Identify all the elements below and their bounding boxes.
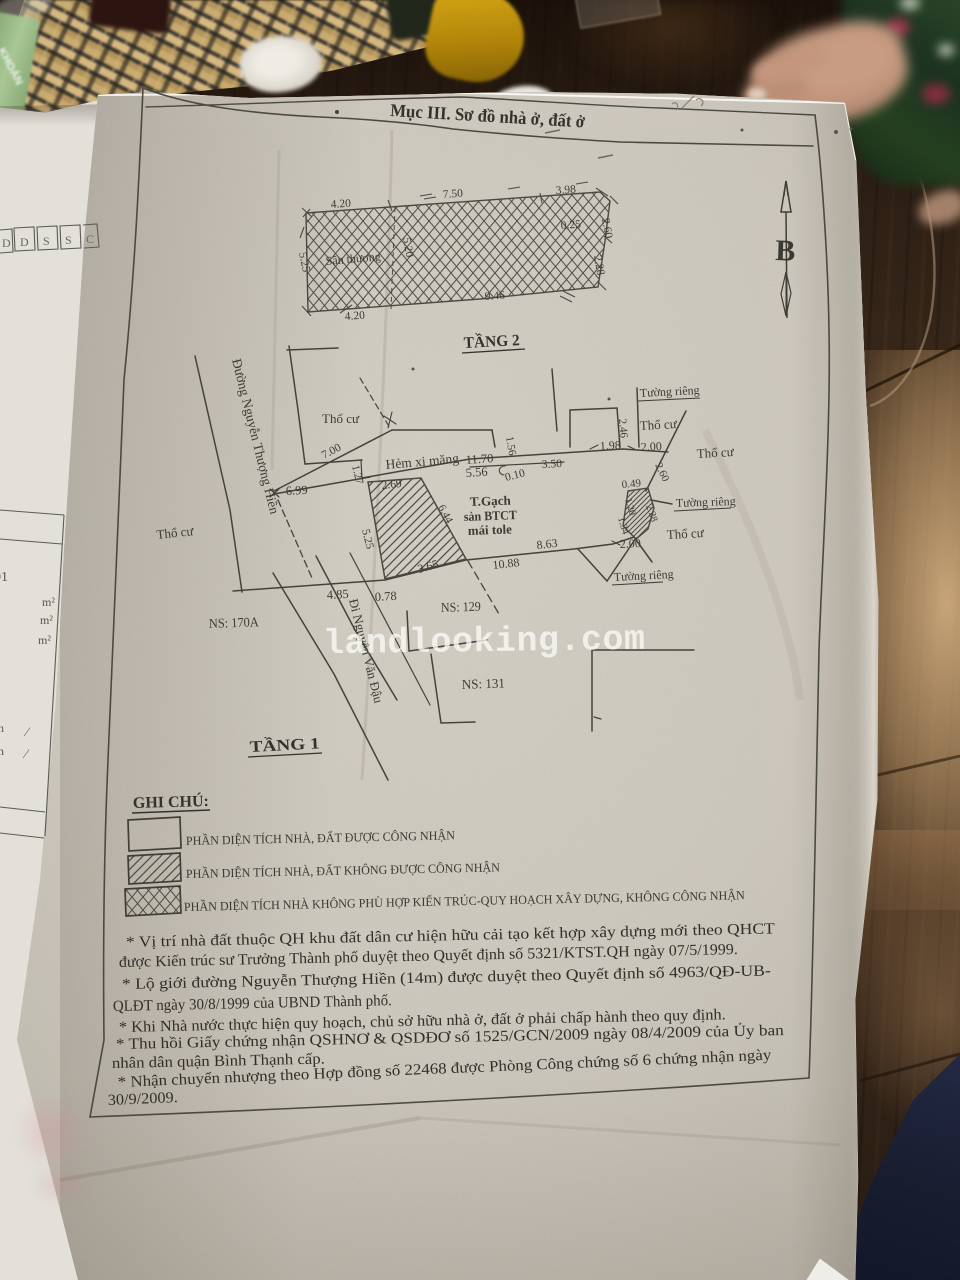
svg-text:4.85: 4.85 xyxy=(326,587,349,602)
svg-text:PHẦN DIỆN TÍCH NHÀ, ĐẤT ĐƯỢC C: PHẦN DIỆN TÍCH NHÀ, ĐẤT ĐƯỢC CÔNG NHẬN xyxy=(186,827,455,848)
svg-text:30/9/2009.: 30/9/2009. xyxy=(107,1089,178,1109)
svg-text:m²: m² xyxy=(40,613,53,627)
svg-text:Thổ cư: Thổ cư xyxy=(666,525,705,542)
svg-text:8.63: 8.63 xyxy=(536,536,558,552)
svg-text:7.00: 7.00 xyxy=(320,441,344,461)
svg-text:Thổ cư: Thổ cư xyxy=(696,444,735,461)
svg-text:Hẻm xi măng: Hẻm xi măng xyxy=(385,451,460,472)
svg-text:Thổ cư: Thổ cư xyxy=(639,416,678,433)
svg-text:1.98: 1.98 xyxy=(599,438,621,453)
svg-text:0.25: 0.25 xyxy=(560,219,581,232)
svg-text:3.98: 3.98 xyxy=(555,184,576,197)
svg-text:T.Gạch: T.Gạch xyxy=(470,493,512,509)
svg-text:3.50: 3.50 xyxy=(542,458,563,471)
svg-text:2.46: 2.46 xyxy=(616,418,630,439)
svg-text:4.20: 4.20 xyxy=(330,198,351,211)
svg-text:5.56: 5.56 xyxy=(465,465,488,480)
svg-text:2.00: 2.00 xyxy=(640,439,662,454)
svg-text:2.69: 2.69 xyxy=(381,478,403,492)
svg-text:01: 01 xyxy=(0,570,8,585)
svg-text:TẦNG 1: TẦNG 1 xyxy=(249,733,320,756)
svg-text:S: S xyxy=(65,233,72,247)
svg-text:TẦNG 2: TẦNG 2 xyxy=(463,330,520,352)
svg-text:4.20: 4.20 xyxy=(344,310,365,323)
svg-text:NS: 131: NS: 131 xyxy=(462,676,505,692)
svg-text:C: C xyxy=(86,232,94,246)
svg-text:5.25: 5.25 xyxy=(359,528,376,551)
svg-text:10.88: 10.88 xyxy=(492,555,520,572)
svg-text:m²: m² xyxy=(42,595,55,609)
svg-text:Thổ cư: Thổ cư xyxy=(156,523,195,542)
svg-text:Thổ cư: Thổ cư xyxy=(322,411,360,426)
svg-text:NS: 129: NS: 129 xyxy=(441,599,482,615)
svg-text:Đường Nguyễn Thượng Hiền: Đường Nguyễn Thượng Hiền xyxy=(229,357,282,516)
svg-text:PHẦN DIỆN TÍCH NHÀ KHÔNG PHÙ H: PHẦN DIỆN TÍCH NHÀ KHÔNG PHÙ HỢP KIẾN TR… xyxy=(184,887,745,914)
svg-text:1.56: 1.56 xyxy=(503,435,518,457)
svg-text:n: n xyxy=(0,721,4,735)
svg-text:m²: m² xyxy=(38,633,51,647)
svg-text:QLĐT ngày 30/8/1999 của UBND T: QLĐT ngày 30/8/1999 của UBND Thành phố. xyxy=(113,992,392,1015)
svg-text:Mục III. Sơ đồ nhà ở, đất ở: Mục III. Sơ đồ nhà ở, đất ở xyxy=(390,100,586,132)
svg-text:2.00: 2.00 xyxy=(619,536,641,551)
svg-text:n: n xyxy=(0,744,4,758)
svg-text:Tường riêng: Tường riêng xyxy=(676,494,736,510)
svg-text:B: B xyxy=(775,234,796,268)
svg-text:6.99: 6.99 xyxy=(285,483,308,498)
svg-text:0.78: 0.78 xyxy=(374,589,397,604)
svg-text:PHẦN DIỆN TÍCH NHÀ, ĐẤT KHÔNG: PHẦN DIỆN TÍCH NHÀ, ĐẤT KHÔNG ĐƯỢC CÔNG … xyxy=(186,859,500,881)
svg-text:1.27: 1.27 xyxy=(349,464,365,486)
svg-text:NS: 170A: NS: 170A xyxy=(209,614,260,631)
svg-text:∕: ∕ xyxy=(22,746,30,761)
svg-text:7.50: 7.50 xyxy=(442,188,463,201)
svg-text:Tường riêng: Tường riêng xyxy=(613,567,673,584)
svg-text:GHI CHÚ:: GHI CHÚ: xyxy=(133,791,209,812)
svg-text:0.10: 0.10 xyxy=(504,467,527,484)
svg-text:Tường riêng: Tường riêng xyxy=(639,383,699,400)
svg-text:9.46: 9.46 xyxy=(484,290,505,303)
svg-text:mái tole: mái tole xyxy=(468,521,513,538)
svg-text:∕: ∕ xyxy=(23,724,31,739)
svg-text:D: D xyxy=(2,236,11,250)
svg-text:0.49: 0.49 xyxy=(621,477,642,491)
svg-text:S: S xyxy=(43,234,50,248)
svg-text:D: D xyxy=(20,235,29,249)
